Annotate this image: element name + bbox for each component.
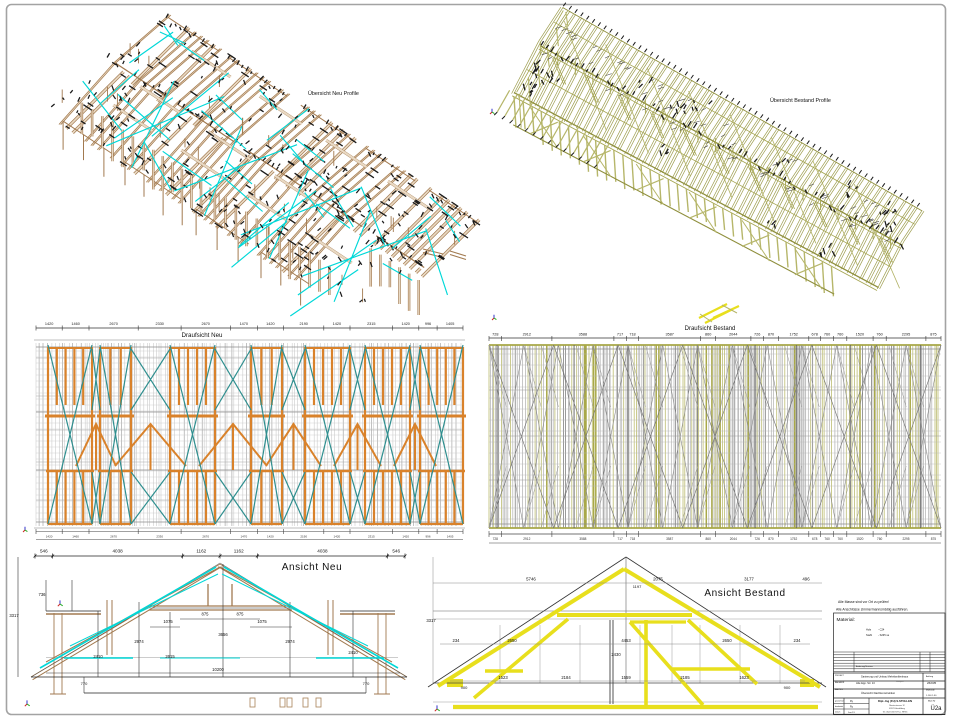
svg-text:860: 860: [706, 537, 712, 541]
svg-text:2044: 2044: [730, 537, 737, 541]
svg-text:1420: 1420: [402, 535, 409, 539]
svg-text:2430: 2430: [611, 652, 621, 657]
svg-text:1520: 1520: [856, 537, 863, 541]
svg-text:2615: 2615: [165, 654, 175, 659]
svg-text:760: 760: [838, 537, 844, 541]
svg-text:1420: 1420: [267, 535, 274, 539]
svg-text:1420: 1420: [46, 535, 53, 539]
svg-text:4038: 4038: [112, 549, 123, 554]
svg-text:Übersicht Neu Profile: Übersicht Neu Profile: [308, 90, 359, 97]
svg-text:5746: 5746: [526, 577, 536, 582]
svg-text:Draufsicht Bestand: Draufsicht Bestand: [685, 326, 736, 332]
svg-text:- S235 va: - S235 va: [878, 633, 890, 637]
svg-text:2190: 2190: [300, 535, 307, 539]
svg-text:1470: 1470: [240, 322, 248, 326]
svg-text:Stempel: Stempel: [896, 680, 904, 683]
svg-text:1197: 1197: [633, 584, 642, 589]
svg-text:678: 678: [812, 537, 818, 541]
svg-text:2330: 2330: [155, 322, 163, 326]
svg-text:1460: 1460: [72, 535, 79, 539]
svg-text:Alle Masse sind vor Ort zu prü: Alle Masse sind vor Ort zu prüfen!: [838, 600, 889, 604]
svg-text:1559: 1559: [621, 675, 631, 680]
svg-text:Blatt Nr: Blatt Nr: [928, 700, 936, 703]
svg-text:1460: 1460: [71, 322, 79, 326]
svg-text:Übersicht Bestand Profile: Übersicht Bestand Profile: [770, 97, 831, 104]
svg-text:69123 Heidelberg: 69123 Heidelberg: [889, 708, 905, 710]
svg-text:2974: 2974: [285, 639, 295, 644]
svg-text:1420: 1420: [401, 322, 409, 326]
svg-text:1162: 1162: [196, 549, 206, 554]
svg-text:10200: 10200: [212, 667, 224, 672]
svg-text:2315: 2315: [367, 322, 375, 326]
svg-text:1:100 1:50: 1:100 1:50: [926, 695, 937, 697]
svg-text:1623: 1623: [739, 675, 749, 680]
svg-text:2670: 2670: [109, 322, 117, 326]
svg-text:726: 726: [755, 537, 761, 541]
svg-text:3588: 3588: [579, 333, 587, 337]
svg-text:234: 234: [453, 638, 461, 643]
svg-text:Auftrag: Auftrag: [926, 675, 934, 678]
svg-text:2650: 2650: [722, 638, 732, 643]
svg-text:2670: 2670: [201, 322, 209, 326]
svg-text:2184: 2184: [561, 675, 571, 680]
svg-text:875: 875: [202, 612, 210, 617]
svg-text:1162: 1162: [234, 549, 244, 554]
svg-text:1405: 1405: [446, 322, 454, 326]
svg-text:760: 760: [877, 537, 883, 541]
svg-text:870: 870: [768, 537, 774, 541]
svg-text:3656: 3656: [218, 632, 228, 637]
svg-text:3588: 3588: [579, 537, 586, 541]
svg-text:2330: 2330: [156, 535, 163, 539]
svg-text:770: 770: [81, 681, 88, 686]
svg-text:1523: 1523: [498, 675, 508, 680]
svg-text:546: 546: [392, 549, 400, 554]
svg-text:875: 875: [931, 537, 937, 541]
svg-text:1075: 1075: [163, 619, 173, 624]
svg-text:736: 736: [39, 592, 47, 597]
svg-text:1420: 1420: [266, 322, 274, 326]
svg-text:4453: 4453: [621, 638, 631, 643]
svg-text:728: 728: [493, 537, 499, 541]
svg-text:- C24: - C24: [878, 628, 885, 632]
svg-text:Dipl.-Ing (FH) S.STOLLEN: Dipl.-Ing (FH) S.STOLLEN: [878, 699, 912, 703]
svg-text:1752: 1752: [790, 537, 797, 541]
svg-text:Holz: Holz: [866, 628, 872, 632]
svg-text:1075: 1075: [257, 619, 267, 624]
svg-text:760: 760: [824, 333, 830, 337]
svg-text:760: 760: [876, 333, 882, 337]
svg-text:760: 760: [837, 333, 843, 337]
svg-text:2974: 2974: [134, 639, 144, 644]
svg-text:1405: 1405: [447, 535, 454, 539]
svg-text:Material:: Material:: [837, 617, 855, 623]
svg-text:1420: 1420: [334, 535, 341, 539]
svg-text:2190: 2190: [299, 322, 307, 326]
svg-text:1420: 1420: [333, 322, 341, 326]
svg-text:Maßstab: Maßstab: [926, 689, 935, 692]
svg-text:678: 678: [812, 333, 818, 337]
svg-text:3177: 3177: [744, 577, 754, 582]
svg-text:726: 726: [754, 333, 760, 337]
svg-text:2670: 2670: [110, 535, 117, 539]
svg-text:BAUHERR: BAUHERR: [835, 681, 845, 684]
svg-text:Ansicht Bestand: Ansicht Bestand: [704, 588, 785, 599]
svg-text:860: 860: [705, 333, 711, 337]
svg-text:Alte Epp. Str. 13: Alte Epp. Str. 13: [856, 681, 875, 685]
svg-text:1520: 1520: [856, 333, 864, 337]
svg-text:2670: 2670: [202, 535, 209, 539]
svg-text:1470: 1470: [240, 535, 247, 539]
svg-text:717: 717: [617, 333, 623, 337]
svg-text:Musterstrasse 12: Musterstrasse 12: [889, 704, 905, 707]
svg-text:1420: 1420: [45, 322, 53, 326]
svg-text:2295: 2295: [902, 333, 910, 337]
svg-text:900: 900: [461, 685, 468, 690]
svg-text:2044: 2044: [729, 333, 737, 337]
svg-text:Stahl: Stahl: [866, 633, 872, 637]
svg-text:3317: 3317: [9, 613, 19, 618]
svg-text:2912: 2912: [523, 537, 530, 541]
svg-text:gezeichnet: gezeichnet: [835, 700, 844, 703]
svg-text:234: 234: [794, 638, 802, 643]
svg-text:Ansicht Neu: Ansicht Neu: [282, 562, 343, 573]
svg-text:BAUTEIL: BAUTEIL: [835, 688, 843, 691]
svg-text:718: 718: [630, 537, 636, 541]
svg-text:Alle Anschlüsse zimmermannsmäß: Alle Anschlüsse zimmermannsmäßig ausführ…: [836, 608, 908, 612]
svg-text:4038: 4038: [317, 549, 328, 554]
svg-text:Ü2a: Ü2a: [930, 705, 942, 712]
svg-text:3587: 3587: [666, 537, 673, 541]
svg-text:3587: 3587: [665, 333, 673, 337]
svg-text:900: 900: [784, 685, 791, 690]
svg-text:Draufsicht Neu: Draufsicht Neu: [182, 332, 223, 339]
svg-text:Übersicht Dachkonstruktion: Übersicht Dachkonstruktion: [861, 691, 896, 695]
svg-text:2912: 2912: [523, 333, 531, 337]
svg-text:717: 717: [617, 537, 623, 541]
svg-text:Tel. 0622 45671 Fax. 98765: Tel. 0622 45671 Fax. 98765: [883, 712, 909, 714]
svg-text:2315: 2315: [368, 535, 375, 539]
svg-text:Jan.13: Jan.13: [848, 712, 855, 714]
svg-text:875: 875: [237, 612, 245, 617]
svg-text:Datum: Datum: [835, 711, 841, 714]
svg-text:26/035: 26/035: [927, 681, 937, 685]
svg-text:2185: 2185: [680, 675, 690, 680]
svg-text:3317: 3317: [426, 618, 436, 623]
svg-text:2075: 2075: [653, 577, 663, 582]
svg-text:1752: 1752: [789, 333, 797, 337]
svg-text:546: 546: [40, 549, 48, 554]
svg-text:2295: 2295: [902, 537, 909, 541]
svg-text:bearbeitet: bearbeitet: [835, 705, 843, 708]
svg-text:728: 728: [492, 333, 498, 337]
svg-text:2410: 2410: [348, 650, 358, 655]
svg-text:875: 875: [930, 333, 936, 337]
svg-text:760: 760: [824, 537, 830, 541]
svg-text:496: 496: [802, 577, 810, 582]
svg-text:770: 770: [363, 681, 370, 686]
svg-text:996: 996: [425, 322, 431, 326]
svg-text:2410: 2410: [93, 654, 103, 659]
svg-text:Sanierung und Umbau Mehrfamili: Sanierung und Umbau Mehrfamilienhaus: [861, 675, 909, 679]
svg-text:Änderung/Revision: Änderung/Revision: [856, 665, 873, 668]
svg-text:PROJEKT: PROJEKT: [835, 675, 845, 677]
svg-text:2650: 2650: [507, 638, 517, 643]
svg-text:870: 870: [768, 333, 774, 337]
svg-text:996: 996: [425, 535, 430, 539]
svg-text:718: 718: [629, 333, 635, 337]
